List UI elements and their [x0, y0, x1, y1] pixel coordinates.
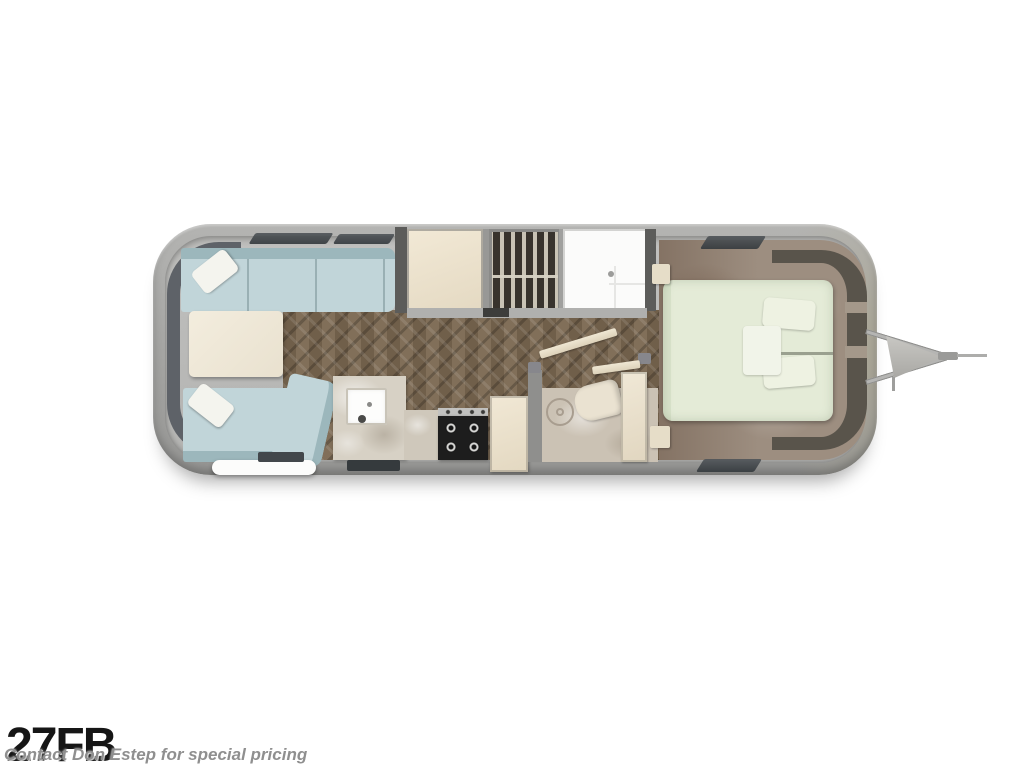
lounge-table: [189, 311, 283, 377]
watermark-label: Contact Don Estep for special pricing: [4, 745, 307, 765]
door-hinge: [528, 362, 541, 373]
galley-shelf: [407, 308, 647, 318]
galley-partition: [395, 227, 407, 313]
bedroom-window: [696, 459, 762, 472]
bed-runner-strap: [781, 352, 833, 355]
window: [333, 234, 395, 244]
kitchen-cabinet: [490, 396, 528, 472]
floorplan-image: 27FB Contact Don Estep for special prici…: [0, 0, 1024, 768]
counter-extension: [404, 410, 438, 460]
hitch-coupler: [938, 352, 958, 360]
headboard-gap: [845, 346, 867, 358]
bed-runner: [743, 326, 781, 375]
entry-step: [212, 460, 316, 475]
hitch-jack: [892, 377, 895, 391]
wardrobe-closet: [489, 229, 561, 311]
sink-drain-icon: [367, 402, 372, 407]
floor-mat: [347, 460, 400, 471]
headboard-gap: [845, 302, 867, 313]
wall-pillar: [528, 370, 542, 462]
stove-knob-panel: [438, 408, 488, 416]
propane-tank-cover: [885, 336, 943, 378]
bathroom-vanity: [621, 372, 647, 462]
shelf-item: [483, 308, 509, 317]
overhead-cabinet: [407, 229, 483, 311]
kitchen-sink: [346, 388, 387, 425]
floor-mat: [258, 452, 304, 462]
bathroom-rug-center: [556, 408, 564, 416]
window: [249, 233, 334, 244]
nightstand: [650, 426, 670, 448]
stove-cooktop: [438, 416, 488, 460]
bedroom-window: [700, 236, 766, 249]
door-hinge: [638, 353, 651, 364]
nightstand: [652, 264, 670, 284]
shower-control-icon: [608, 271, 614, 277]
hitch-ball-rod: [957, 354, 987, 357]
shower-stall: [563, 229, 647, 311]
sink-faucet-icon: [358, 415, 366, 423]
